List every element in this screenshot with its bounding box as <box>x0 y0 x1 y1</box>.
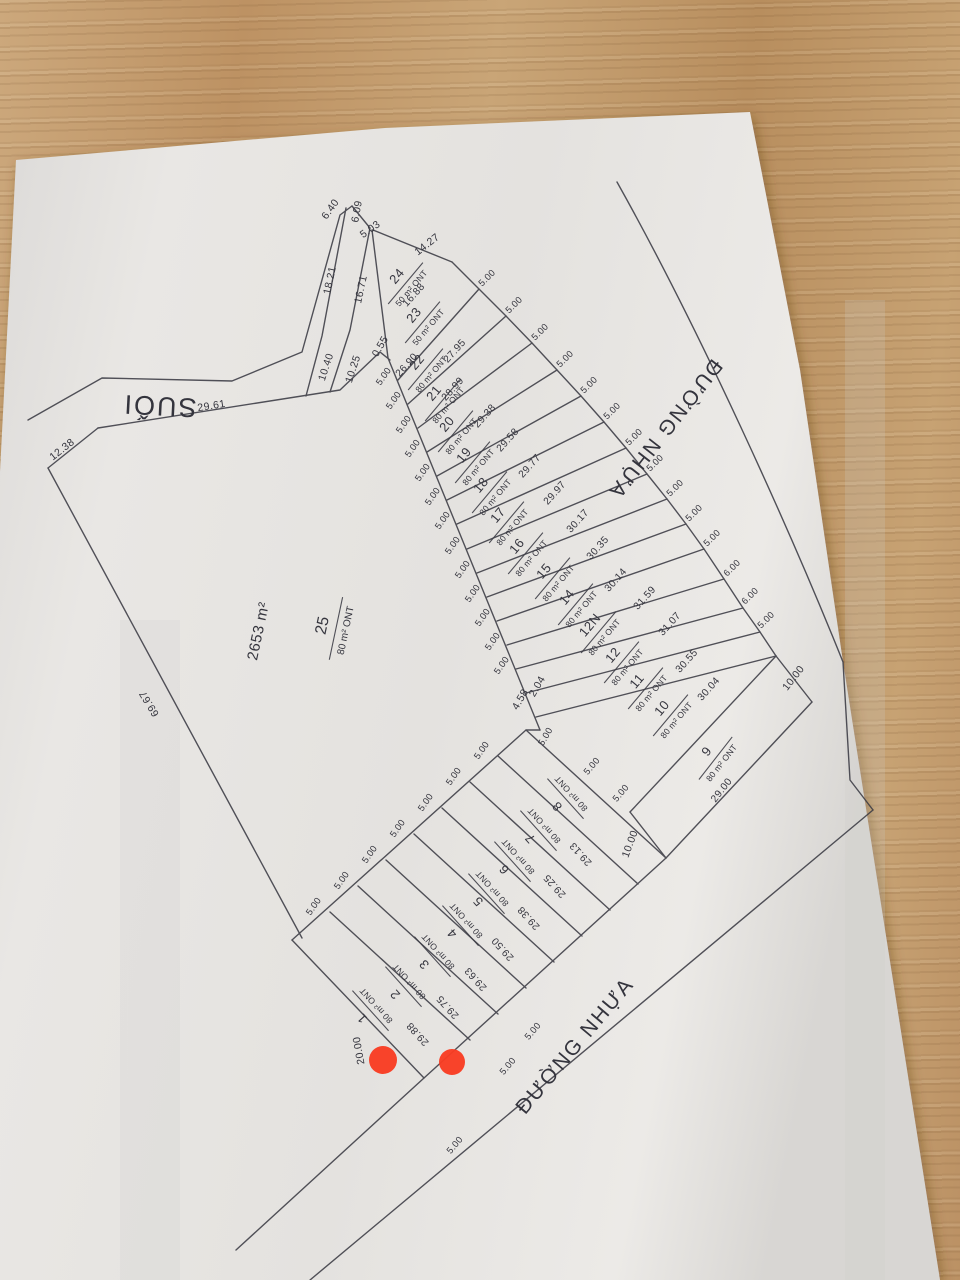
paper-crease <box>120 620 180 1280</box>
paper-crease <box>845 300 885 1280</box>
lot-number: 25 <box>313 615 333 636</box>
stream-name-label: SUỐI <box>122 389 198 425</box>
survey-plan-photo: 2450 m² ONT2350 m² ONT2280 m² ONT2180 m²… <box>0 0 960 1280</box>
red-marker-dot <box>369 1046 397 1074</box>
wood-table-background: 2450 m² ONT2350 m² ONT2280 m² ONT2180 m²… <box>0 0 960 1280</box>
red-marker-dot <box>439 1049 465 1075</box>
